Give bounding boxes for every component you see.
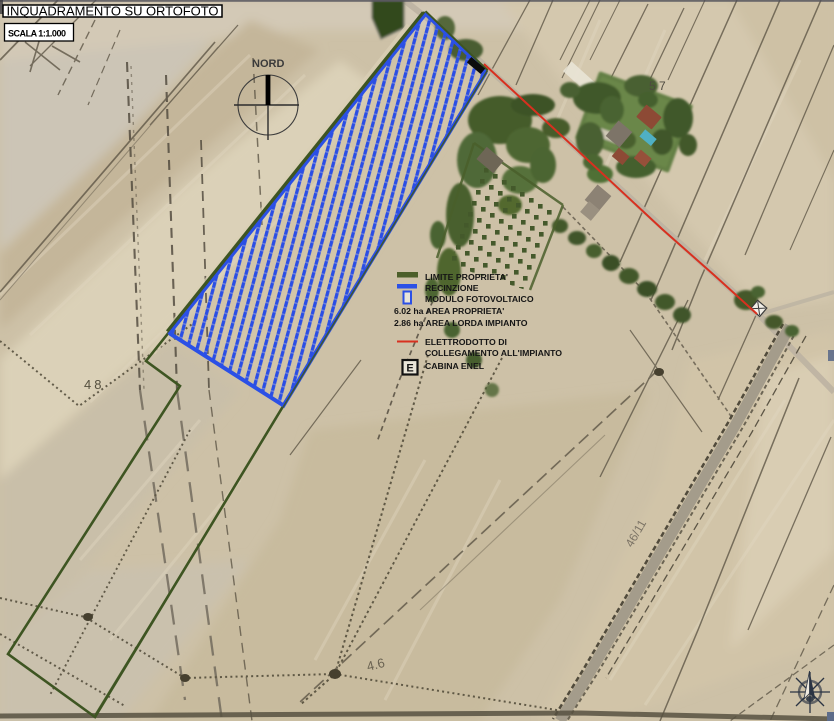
svg-text:6.02 ha AREA PROPRIETA': 6.02 ha AREA PROPRIETA' xyxy=(394,306,504,316)
svg-text:RECINZIONE: RECINZIONE xyxy=(425,283,479,293)
svg-text:LIMITE PROPRIETA': LIMITE PROPRIETA' xyxy=(425,272,508,282)
svg-text:SCALA 1:1.000: SCALA 1:1.000 xyxy=(8,29,66,39)
svg-text:CABINA ENEL: CABINA ENEL xyxy=(425,361,485,371)
svg-text:COLLEGAMENTO ALL'IMPIANTO: COLLEGAMENTO ALL'IMPIANTO xyxy=(425,348,562,358)
svg-text:48: 48 xyxy=(84,377,104,392)
svg-text:2.86 ha AREA LORDA IMPIANTO: 2.86 ha AREA LORDA IMPIANTO xyxy=(394,318,528,328)
svg-text:5 7: 5 7 xyxy=(649,79,666,93)
svg-text:INQUADRAMENTO SU ORTOFOTO: INQUADRAMENTO SU ORTOFOTO xyxy=(7,3,219,18)
svg-text:NORD: NORD xyxy=(252,58,284,70)
svg-text:E: E xyxy=(406,363,413,375)
svg-text:ELETTRODOTTO DI: ELETTRODOTTO DI xyxy=(425,337,507,347)
svg-text:MODULO FOTOVOLTAICO: MODULO FOTOVOLTAICO xyxy=(425,294,534,304)
